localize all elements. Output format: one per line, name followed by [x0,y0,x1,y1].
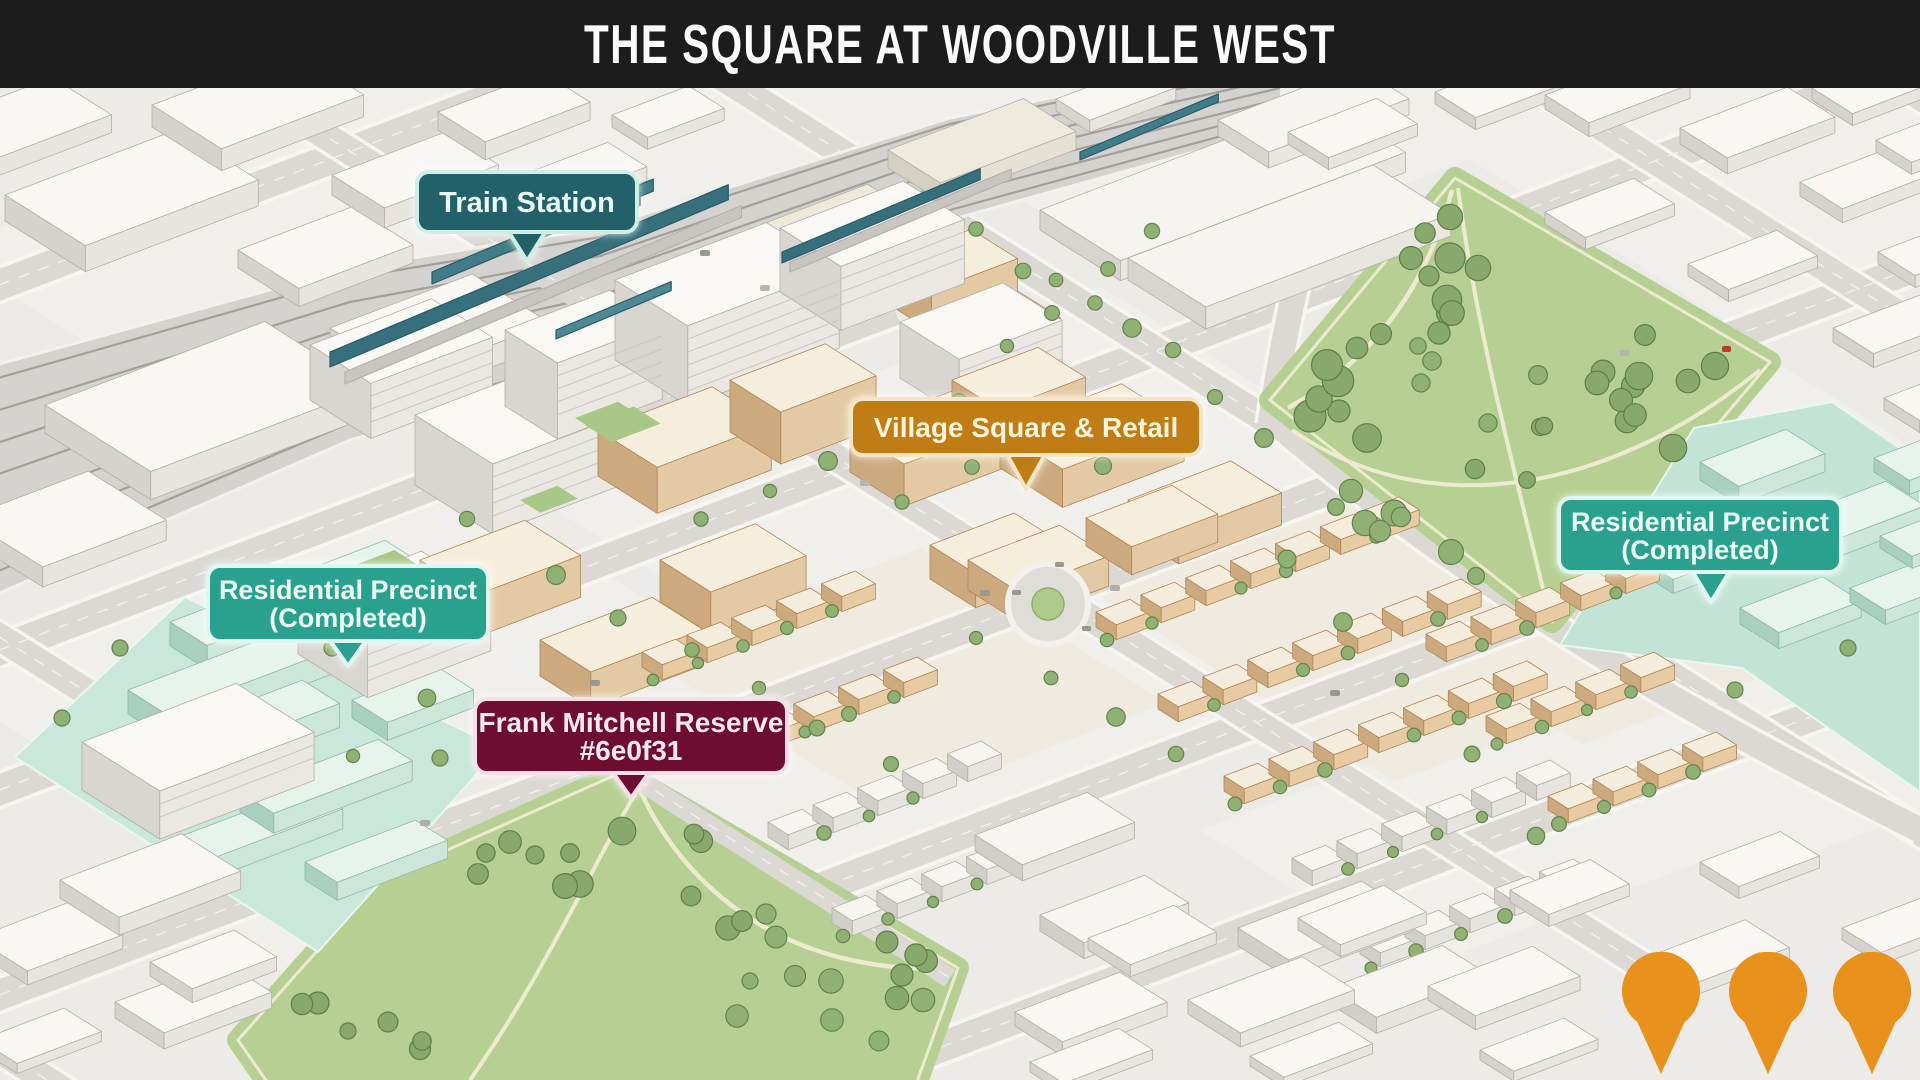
svg-text:Frank Mitchell Reserve: Frank Mitchell Reserve [478,707,783,738]
svg-text:Village Square & Retail: Village Square & Retail [874,412,1179,443]
svg-text:(Completed): (Completed) [269,603,427,633]
svg-text:THE SQUARE AT WOODVILLE WEST: THE SQUARE AT WOODVILLE WEST [584,13,1336,75]
svg-text:Residential Precinct: Residential Precinct [219,575,477,605]
svg-text:#6e0f31: #6e0f31 [580,735,683,766]
svg-text:(Completed): (Completed) [1621,535,1779,565]
svg-text:Train Station: Train Station [439,187,615,219]
svg-text:Residential Precinct: Residential Precinct [1571,507,1829,537]
